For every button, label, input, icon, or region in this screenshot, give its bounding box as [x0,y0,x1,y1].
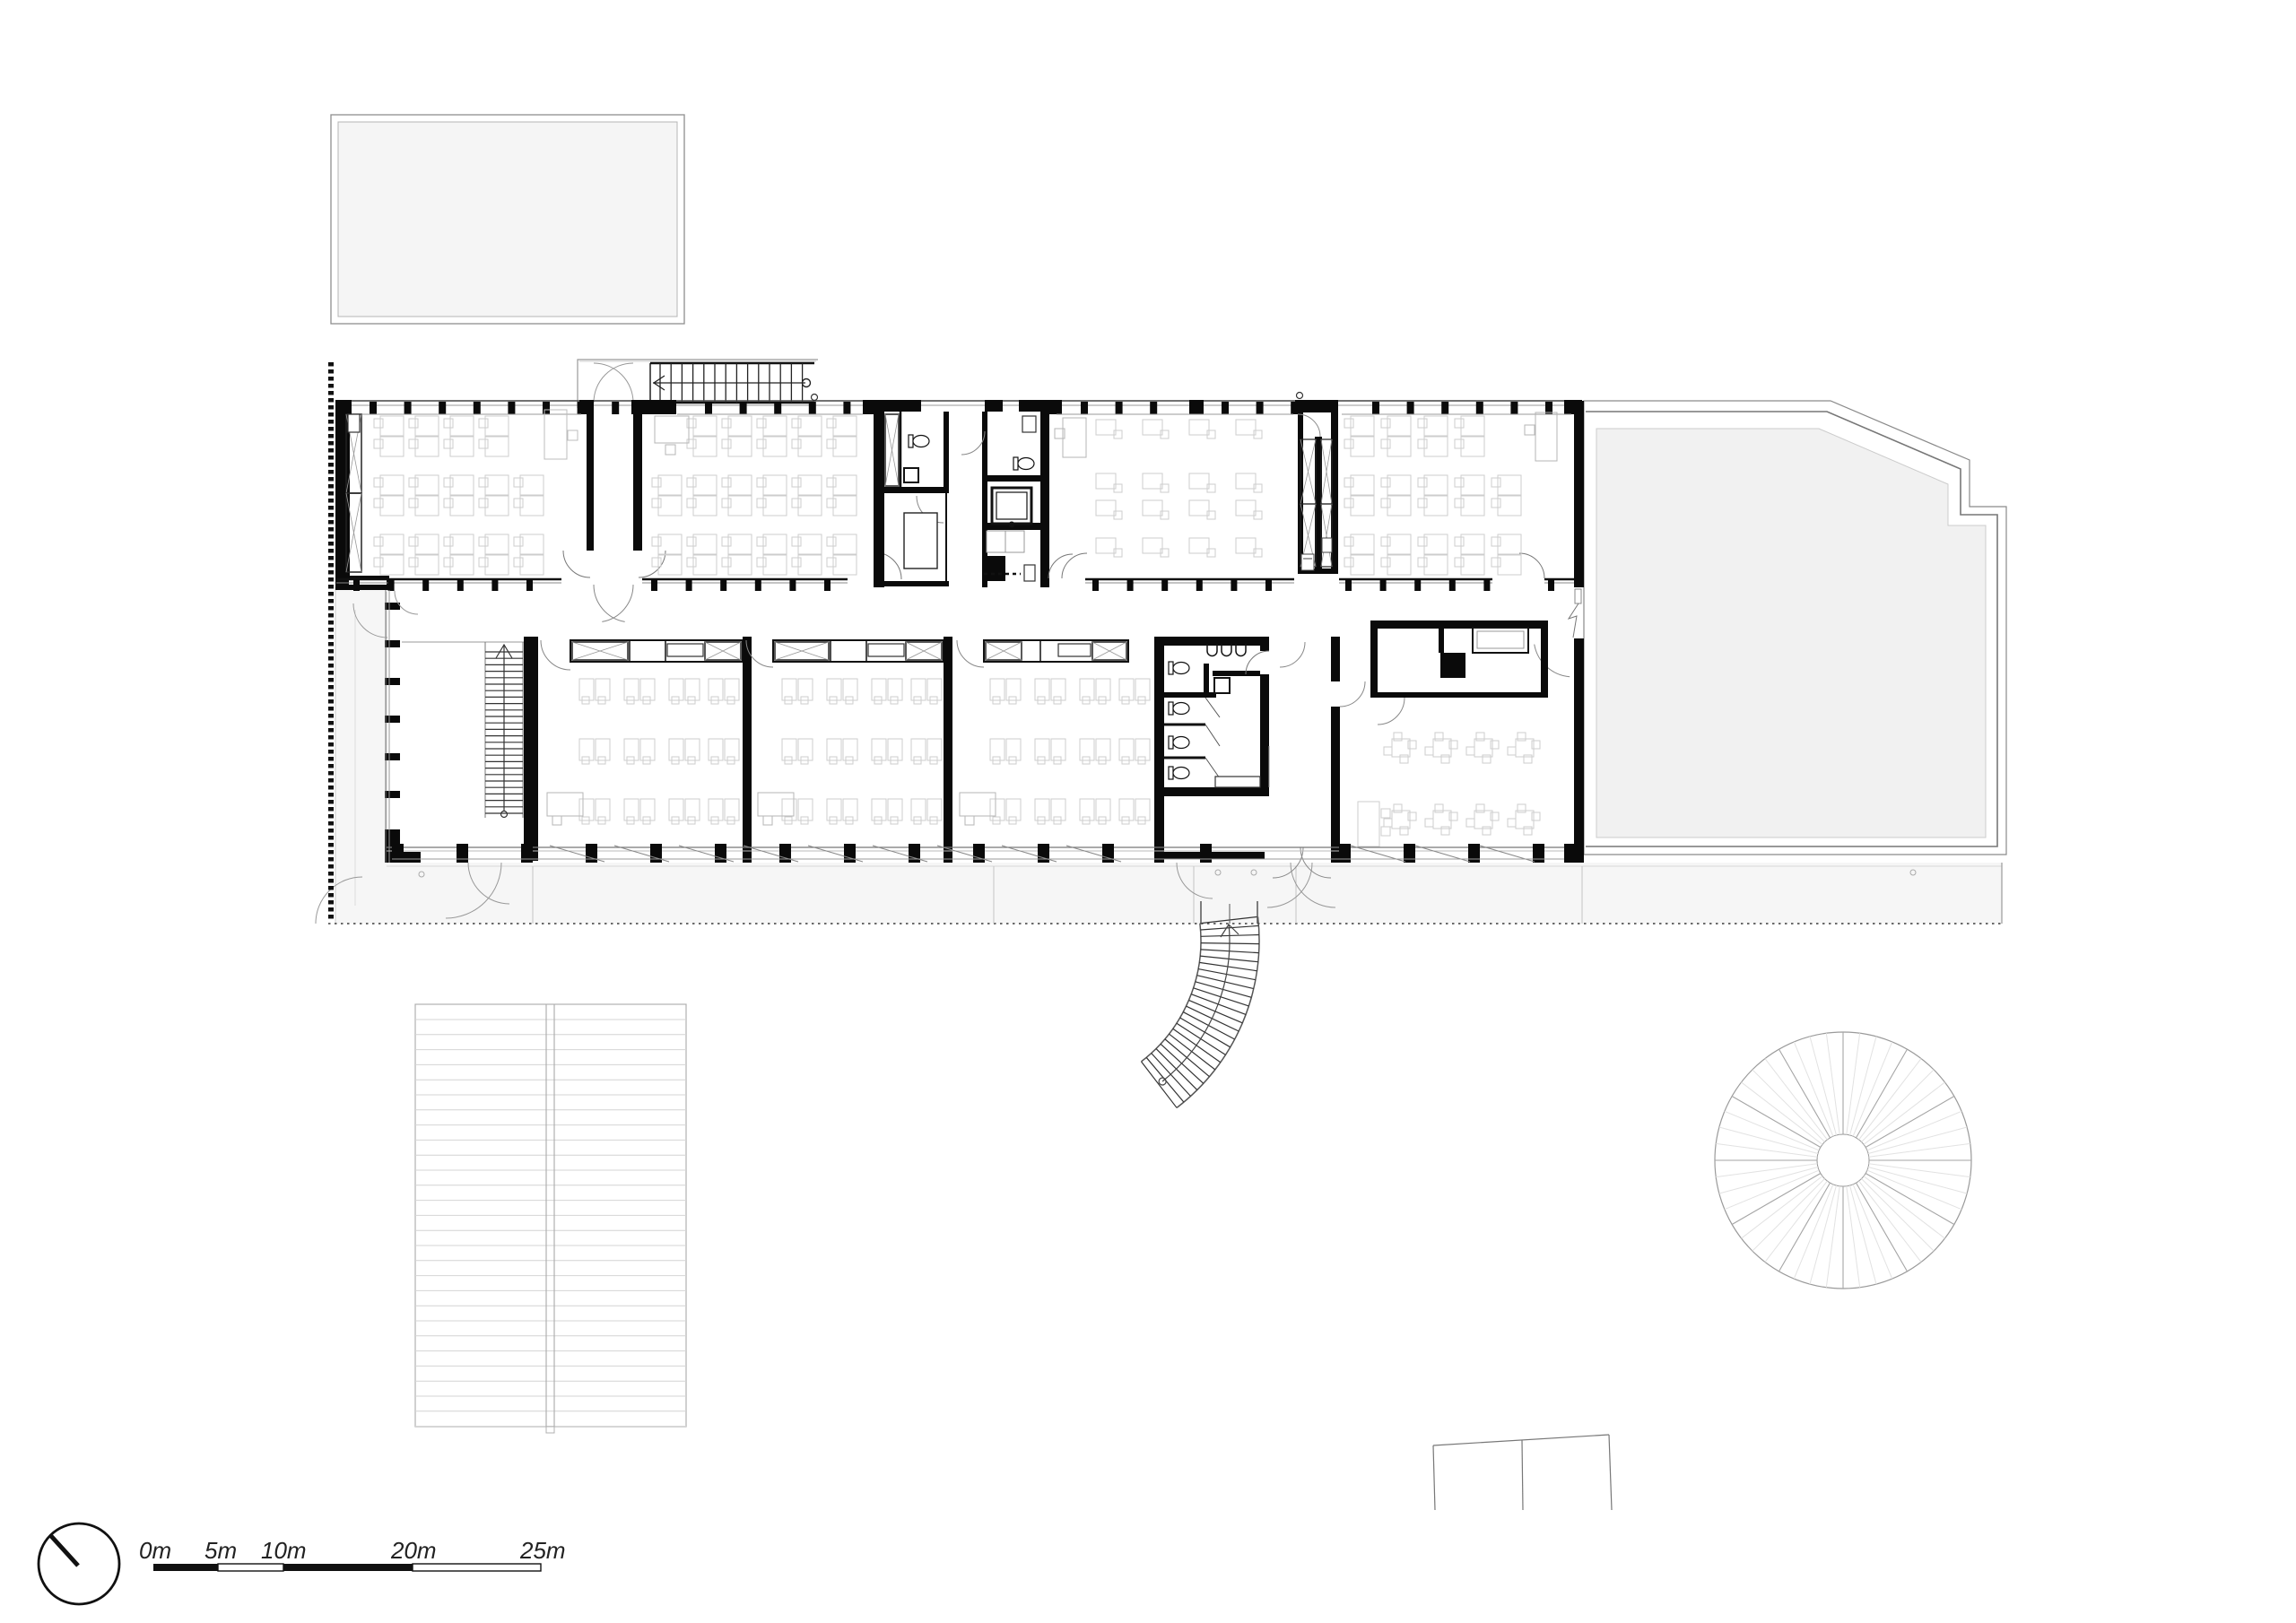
svg-text:5m: 5m [204,1537,237,1564]
svg-text:10m: 10m [261,1537,307,1564]
svg-text:0m: 0m [139,1537,171,1564]
svg-text:20m: 20m [390,1537,437,1564]
svg-text:25m: 25m [519,1537,566,1564]
